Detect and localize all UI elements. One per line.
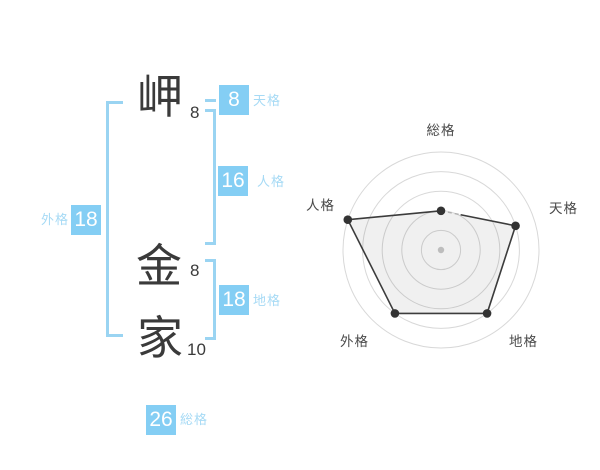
- radar-axis-chikaku: 地格: [509, 334, 538, 349]
- radar-axis-jinkaku: 人格: [306, 198, 335, 213]
- radar-axis-gaikaku: 外格: [340, 334, 369, 349]
- radar-axis-tenkaku: 天格: [549, 201, 578, 216]
- radar-axis-soukaku: 総格: [427, 123, 456, 138]
- fortune-radar-chart: [0, 0, 600, 470]
- name-analysis-page: 岬 8 金 8 家 10 8 天格 16 人格 18 地格 外格 18 26 総…: [0, 0, 600, 470]
